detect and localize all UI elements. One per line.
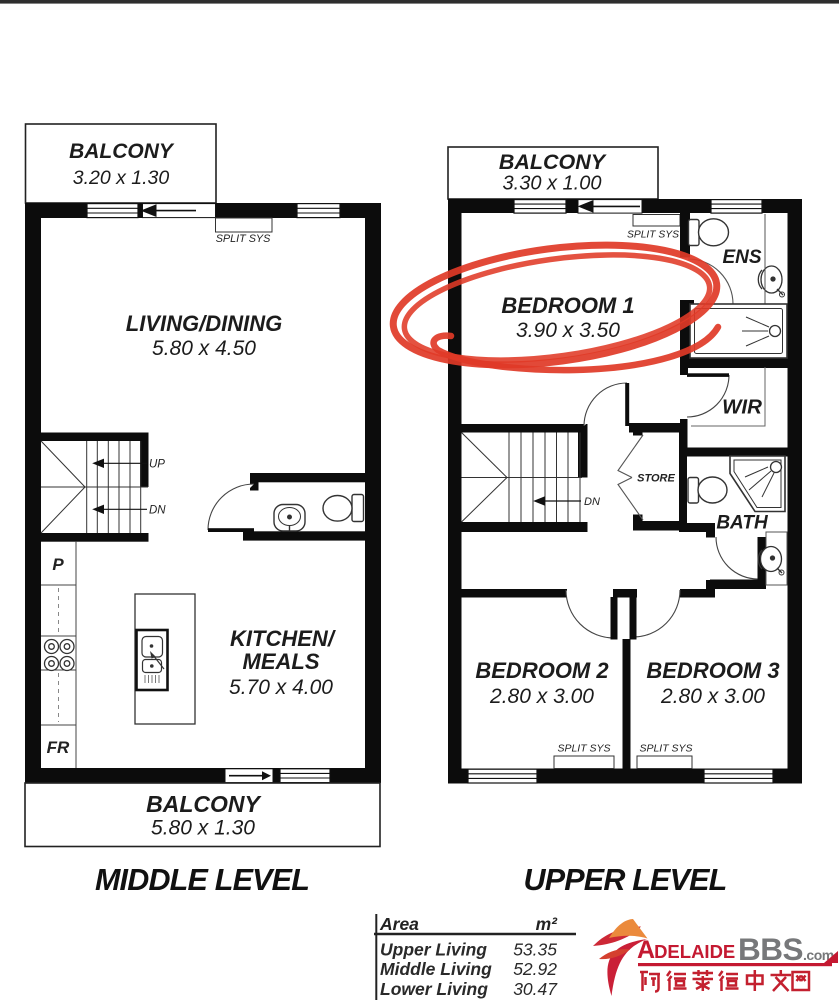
svg-text:3.30 x 1.00: 3.30 x 1.00 [503,173,602,195]
svg-text:Lower Living: Lower Living [380,979,488,999]
svg-text:m²: m² [536,914,559,934]
svg-text:BEDROOM 1: BEDROOM 1 [501,293,634,318]
svg-text:3.90 x 3.50: 3.90 x 3.50 [516,319,620,342]
svg-text:Upper Living: Upper Living [380,940,487,960]
svg-text:Area: Area [379,914,419,934]
svg-text:UPPER LEVEL: UPPER LEVEL [523,863,726,897]
svg-text:2.80 x 3.00: 2.80 x 3.00 [489,685,594,708]
svg-text:UP: UP [149,459,165,471]
svg-text:BBS.com: BBS.com [738,931,834,967]
svg-text:BALCONY: BALCONY [69,140,175,163]
svg-text:ENS: ENS [722,247,761,268]
svg-text:STORE: STORE [637,473,675,485]
svg-text:5.80 x 4.50: 5.80 x 4.50 [152,337,256,360]
svg-text:P: P [52,555,64,574]
svg-text:52.92: 52.92 [513,959,557,979]
svg-text:ADELAIDE: ADELAIDE [637,936,735,964]
svg-text:SPLIT SYS: SPLIT SYS [639,743,692,755]
svg-text:SPLIT SYS: SPLIT SYS [627,230,679,241]
svg-text:5.80 x 1.30: 5.80 x 1.30 [151,817,255,840]
svg-text:BATH: BATH [716,513,769,534]
svg-text:WIR: WIR [722,396,762,419]
svg-text:DN: DN [584,496,600,508]
svg-text:BALCONY: BALCONY [146,791,262,817]
svg-text:2.80 x 3.00: 2.80 x 3.00 [660,685,765,708]
svg-text:BALCONY: BALCONY [499,150,607,174]
svg-text:30.47: 30.47 [513,979,558,999]
svg-text:DN: DN [149,505,166,517]
svg-text:SPLIT SYS: SPLIT SYS [557,743,610,755]
svg-text:SPLIT SYS: SPLIT SYS [216,233,271,245]
svg-text:FR: FR [47,738,70,757]
svg-text:BEDROOM 2: BEDROOM 2 [475,658,609,683]
svg-text:MEALS: MEALS [243,649,320,674]
svg-text:KITCHEN/: KITCHEN/ [230,626,337,651]
svg-text:BEDROOM 3: BEDROOM 3 [646,658,779,683]
svg-text:Middle Living: Middle Living [380,959,492,979]
svg-text:MIDDLE LEVEL: MIDDLE LEVEL [95,863,309,897]
svg-text:53.35: 53.35 [513,940,557,960]
svg-text:LIVING/DINING: LIVING/DINING [126,311,282,336]
svg-text:3.20 x 1.30: 3.20 x 1.30 [73,167,170,189]
svg-text:5.70 x 4.00: 5.70 x 4.00 [229,676,333,699]
